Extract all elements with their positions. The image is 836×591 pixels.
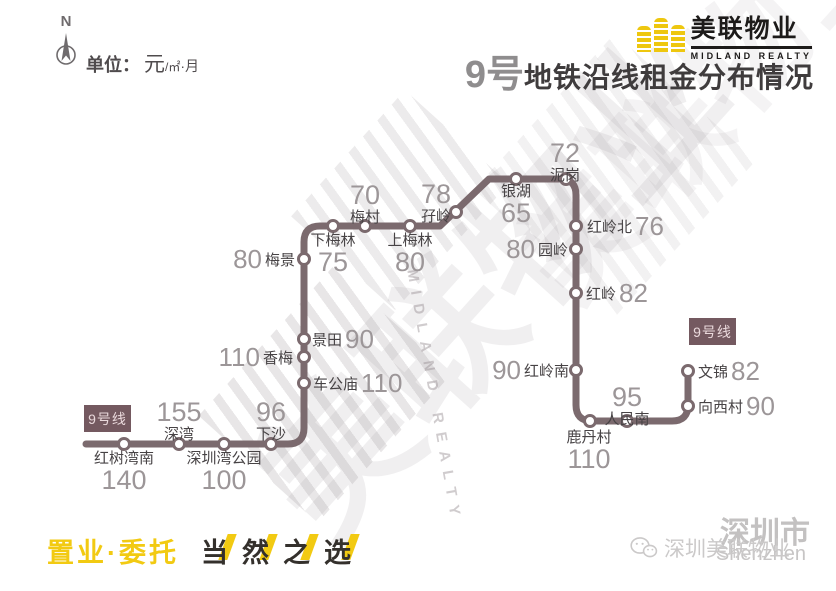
station-name: 景田 [312,329,342,350]
unit-yuan: 元 [144,48,165,78]
station-price: 78 [421,181,451,208]
station-price: 90 [492,357,521,383]
page-title: 9号 地铁沿线租金分布情况 [465,56,814,94]
station-dot [299,352,310,363]
station-label: 红岭 82 [586,280,648,306]
title-line-number: 9号 [465,56,524,94]
station-price: 80 [395,249,425,276]
station-dot [683,401,694,412]
station-label: 80 园岭 [506,236,568,262]
station-label: 78 孖岭 [406,181,466,225]
title-text: 地铁沿线租金分布情况 [524,64,814,92]
unit-label: 单位： [86,51,140,77]
slogan-char: 之 [283,531,310,570]
station-name: 园岭 [538,239,568,260]
infographic-page: 美联物业 美联物业 MIDLAND REALTY N 单位： 元 /㎡ ·月 美… [0,0,836,591]
station-name: 文锦 [698,361,728,382]
unit-legend: 单位： 元 /㎡ ·月 [86,48,199,78]
station-name: 向西村 [698,396,743,417]
slogan-part2: 当 然 之 选 [201,531,365,570]
station-name: 红岭南 [524,360,569,381]
station-label: 95 人民南 [591,384,663,428]
station-price: 82 [731,358,760,384]
station-label: 银湖 65 [486,183,546,227]
station-label: 上梅林 80 [380,232,440,276]
station-label: 景田 90 [312,326,374,352]
station-label: 90 红岭南 [492,357,569,383]
station-dot [219,439,230,450]
station-name: 车公庙 [313,373,358,394]
wechat-account-watermark: 深圳美联物业 [630,533,790,563]
midland-m-icon [637,18,685,52]
station-label: 车公庙 110 [313,370,402,396]
station-dot [571,365,582,376]
compass-icon [53,29,79,75]
station-label: 96 下沙 [243,399,299,443]
north-indicator: N [50,14,82,80]
station-label: 鹿丹村 110 [551,429,627,473]
station-label: 80 梅景 [233,246,295,272]
station-name: 梅景 [265,249,295,270]
station-price: 75 [318,249,348,276]
station-label: 110 香梅 [219,344,293,370]
brand-name-cn: 美联物业 [691,16,812,49]
station-price: 90 [345,326,374,352]
station-price: 96 [256,399,286,426]
station-label: 72 泥岗 [534,140,596,184]
station-name: 梅村 [350,209,380,226]
station-price: 80 [233,246,262,272]
slogan-part1: 置业·委托 [47,531,179,570]
station-label: 70 梅村 [335,182,395,226]
unit-per: /㎡ [165,58,180,75]
station-dot [119,439,130,450]
station-dot [571,288,582,299]
station-price: 76 [635,213,664,239]
station-dot [683,366,694,377]
station-price: 65 [501,200,531,227]
station-name: 下沙 [256,426,286,443]
station-price: 110 [361,370,402,396]
station-price: 155 [156,399,201,426]
station-price: 70 [350,182,380,209]
station-price: 110 [219,344,260,370]
wechat-account-name: 深圳美联物业 [664,533,790,563]
unit-month: ·月 [180,56,199,76]
brand-logo: 美联物业 MIDLAND REALTY [637,16,812,61]
station-name: 深湾 [164,426,194,443]
station-price: 140 [101,467,146,494]
station-price: 80 [506,236,535,262]
station-name: 人民南 [604,411,649,428]
north-letter: N [50,14,82,29]
station-label: 文锦 82 [698,358,760,384]
station-dot [571,244,582,255]
station-name: 红岭北 [587,216,632,237]
station-price: 100 [201,467,246,494]
station-dot [299,378,310,389]
station-name: 孖岭 [421,208,451,225]
line-badge: 9号线 [84,405,131,432]
station-label: 红岭北 76 [587,213,664,239]
station-label: 155 深湾 [149,399,209,443]
slogan-char: 选 [324,531,351,570]
wechat-icon [630,536,658,560]
slogan: 置业·委托 当 然 之 选 [47,531,365,570]
station-name: 香梅 [263,347,293,368]
station-label: 下梅林 75 [303,232,363,276]
station-label: 红树湾南 140 [82,450,166,494]
slogan-char: 当 [201,531,228,570]
slogan-char: 然 [242,531,269,570]
station-dot [571,221,582,232]
station-price: 72 [550,140,580,167]
station-price: 90 [746,393,775,419]
station-dot [299,334,310,345]
station-price: 95 [612,384,642,411]
station-label: 深圳湾公园 100 [180,450,268,494]
station-price: 110 [567,446,610,473]
station-label: 向西村 90 [698,393,775,419]
station-name: 红岭 [586,283,616,304]
station-name: 泥岗 [550,167,580,184]
station-price: 82 [619,280,648,306]
line-badge: 9号线 [689,318,736,345]
